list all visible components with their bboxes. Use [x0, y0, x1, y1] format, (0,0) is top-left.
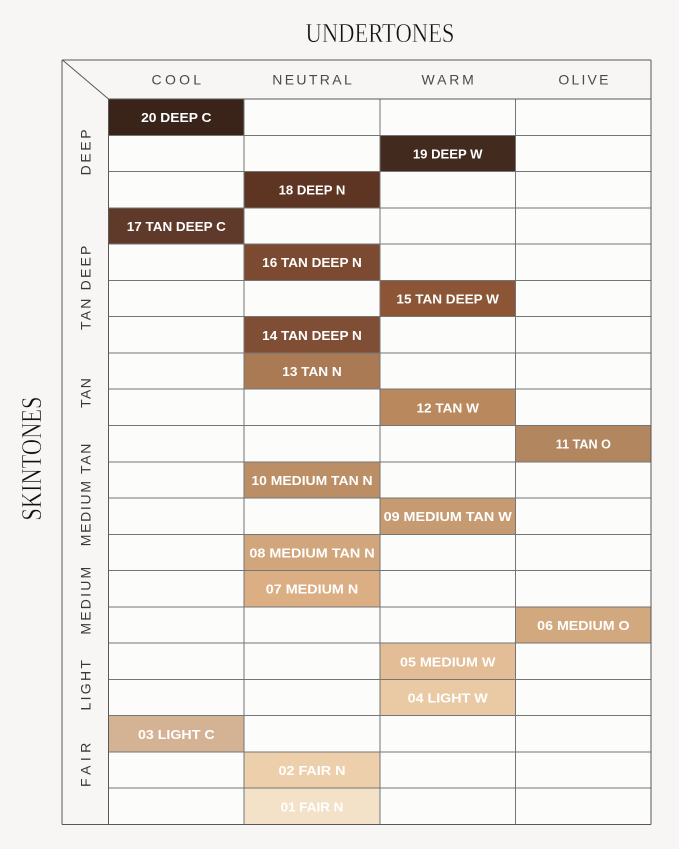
svg-text:03 LIGHT C: 03 LIGHT C [138, 727, 215, 742]
svg-text:COOL: COOL [152, 71, 202, 87]
svg-text:DEEP: DEEP [78, 127, 94, 176]
svg-text:06 MEDIUM O: 06 MEDIUM O [537, 618, 629, 633]
svg-text:20 DEEP C: 20 DEEP C [141, 110, 212, 125]
svg-text:07 MEDIUM N: 07 MEDIUM N [266, 582, 359, 597]
svg-text:18 DEEP N: 18 DEEP N [279, 183, 346, 198]
svg-text:SKINTONES: SKINTONES [17, 397, 48, 521]
svg-text:14 TAN DEEP N: 14 TAN DEEP N [262, 328, 362, 343]
svg-text:LIGHT: LIGHT [78, 658, 94, 711]
svg-text:TAN DEEP: TAN DEEP [78, 243, 94, 330]
svg-text:MEDIUM TAN: MEDIUM TAN [78, 442, 94, 546]
svg-text:19 DEEP W: 19 DEEP W [413, 146, 483, 161]
svg-text:NEUTRAL: NEUTRAL [272, 71, 352, 87]
svg-text:15 TAN DEEP W: 15 TAN DEEP W [396, 292, 499, 307]
svg-text:TAN: TAN [78, 377, 94, 408]
svg-text:13 TAN N: 13 TAN N [282, 364, 342, 379]
svg-text:12 TAN W: 12 TAN W [417, 400, 480, 415]
svg-text:WARM: WARM [422, 71, 474, 87]
svg-text:05 MEDIUM W: 05 MEDIUM W [400, 654, 496, 669]
svg-text:11 TAN O: 11 TAN O [556, 437, 611, 452]
svg-text:16 TAN DEEP N: 16 TAN DEEP N [262, 255, 362, 270]
svg-text:MEDIUM: MEDIUM [78, 565, 94, 635]
svg-text:FAIR: FAIR [78, 738, 94, 787]
svg-text:10 MEDIUM TAN N: 10 MEDIUM TAN N [251, 473, 372, 488]
svg-text:OLIVE: OLIVE [558, 71, 608, 87]
svg-text:09 MEDIUM TAN W: 09 MEDIUM TAN W [384, 509, 513, 524]
svg-text:01 FAIR N: 01 FAIR N [281, 799, 344, 814]
svg-text:04 LIGHT W: 04 LIGHT W [408, 691, 489, 706]
svg-text:17 TAN DEEP C: 17 TAN DEEP C [127, 219, 227, 234]
svg-text:02 FAIR N: 02 FAIR N [279, 763, 346, 778]
svg-text:08 MEDIUM TAN N: 08 MEDIUM TAN N [249, 545, 374, 560]
svg-text:UNDERTONES: UNDERTONES [306, 18, 455, 48]
